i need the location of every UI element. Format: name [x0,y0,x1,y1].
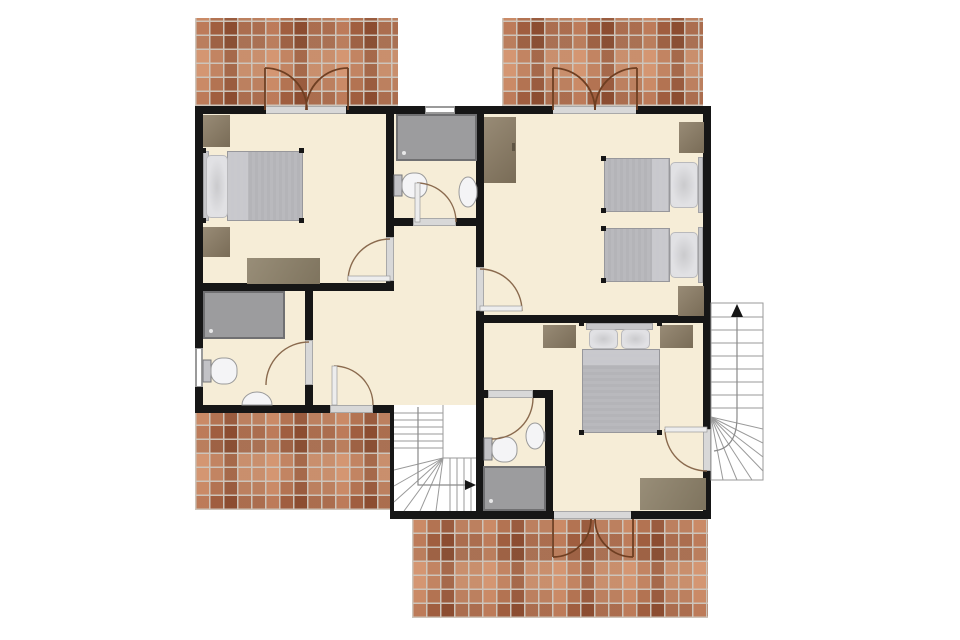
nightstand [543,325,576,348]
wall [390,511,553,519]
wall [195,283,386,291]
pillow [206,155,228,218]
wall [703,106,711,429]
bed-post [579,430,584,435]
wall [476,311,484,519]
bed-post [657,430,662,435]
bed-headboard [698,227,703,283]
bed-post [299,218,304,223]
room-bedroom-top-right [484,114,703,315]
room-hallway [394,226,476,511]
french-door-sill [552,106,638,114]
door-hinge-post [346,106,351,114]
room-bathroom-bottom-left [203,291,305,405]
rug [247,258,320,284]
pillow [670,162,698,208]
pillow [621,329,650,349]
bed-post [657,321,662,326]
bed-post [579,321,584,326]
door-sill [703,429,711,471]
terrace-top-right [502,18,703,106]
door-sill [413,218,456,226]
door-hinge-post [636,106,641,114]
door-hinge-post [549,511,554,519]
door-sill [476,267,484,311]
blanket-fold [228,152,248,220]
wall [386,218,413,226]
blanket-fold [583,350,659,365]
door-sill [305,340,313,385]
bed-headboard [698,157,703,213]
exterior-stairs [711,303,763,480]
wall [476,106,484,267]
room-bathroom-top-middle [394,114,476,218]
blanket-fold [652,159,668,211]
nightstand [203,227,230,257]
door-sill [330,405,373,413]
terrace-bottom-left [195,413,392,510]
wall [305,291,313,340]
wall [545,390,553,519]
door-hinge-post [631,511,636,519]
wall [305,385,313,405]
nightstand [679,122,704,153]
room-hallway-lower [313,291,394,405]
pillow [589,329,618,349]
window [195,348,203,387]
french-door-sill [265,106,348,114]
wall [484,315,703,323]
window [425,106,455,114]
door-sill [488,390,533,398]
wall [633,511,711,519]
door-hinge-post [548,106,553,114]
door-sill [386,237,394,281]
nightstand [660,325,693,348]
french-door-sill [553,511,633,519]
blanket-fold [652,229,668,281]
bed-post [601,208,606,213]
floor-plan [0,0,960,640]
terrace-top-left [195,18,398,106]
wall [390,405,398,519]
direction-arrow-up [731,304,743,317]
bed-post [299,148,304,153]
bed-post [601,278,606,283]
wardrobe [203,115,230,147]
terrace-bottom-center [412,519,708,618]
bed-post [201,218,206,223]
wall [195,405,330,413]
bed-post [601,226,606,231]
wall [386,281,394,291]
rug [640,478,706,510]
pillow [670,232,698,278]
bed-post [201,148,206,153]
wardrobe-handle [512,143,515,151]
bed-post [601,156,606,161]
door-hinge-post [261,106,266,114]
nightstand [678,286,704,316]
